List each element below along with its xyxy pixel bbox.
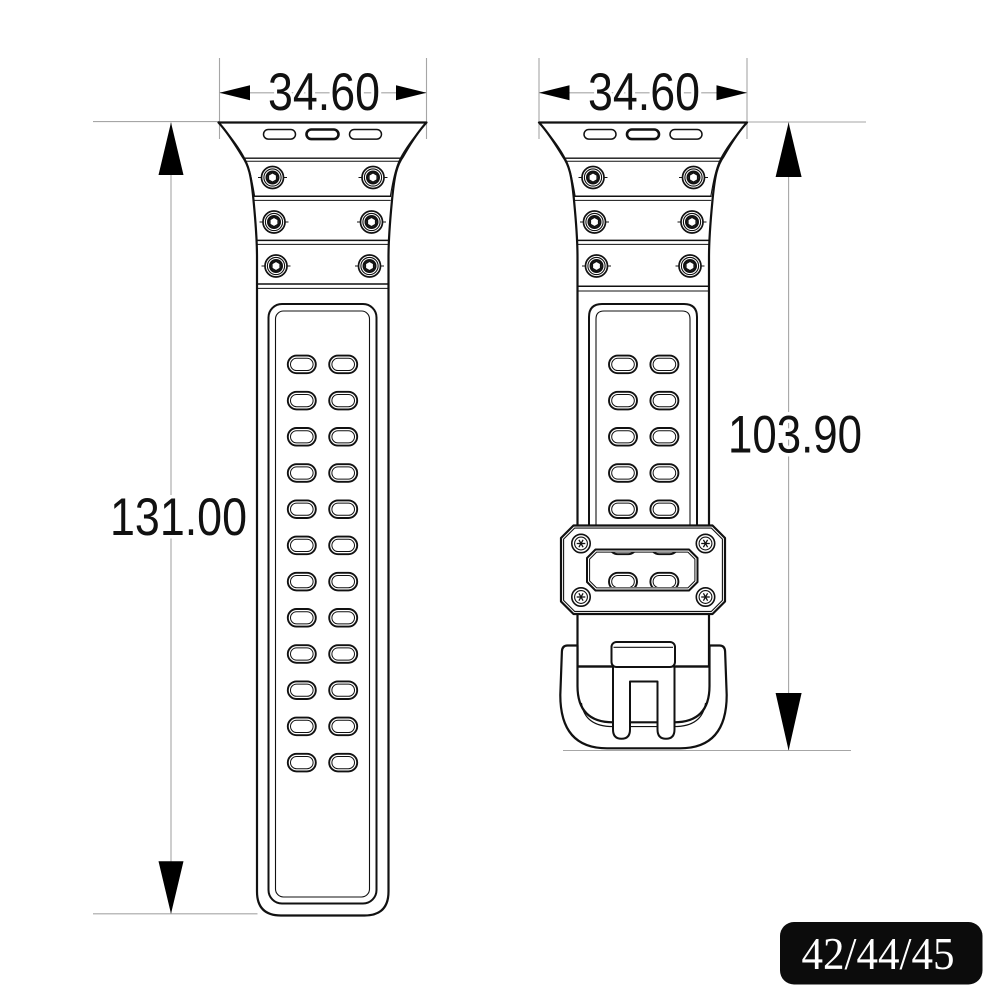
svg-text:42/44/45: 42/44/45 [802,929,955,979]
svg-text:131.00: 131.00 [110,488,247,547]
svg-text:103.90: 103.90 [728,406,862,465]
svg-text:34.60: 34.60 [588,63,700,122]
svg-text:34.60: 34.60 [268,63,380,122]
